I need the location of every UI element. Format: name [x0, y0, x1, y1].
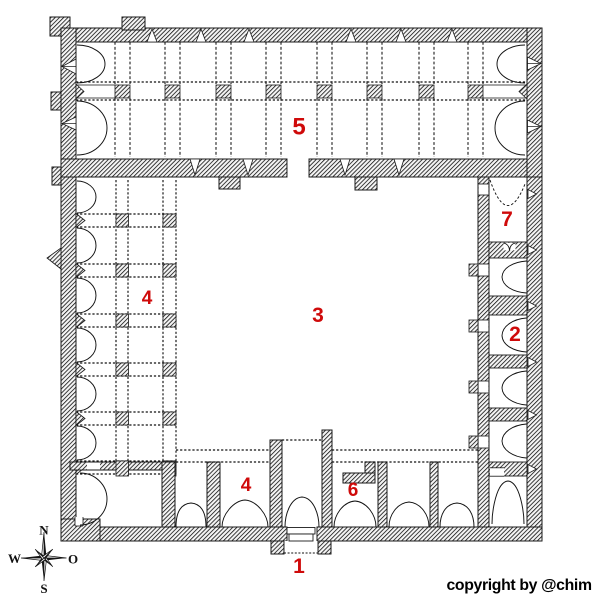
- svg-text:6: 6: [348, 480, 359, 501]
- svg-text:7: 7: [501, 208, 513, 231]
- svg-text:2: 2: [509, 323, 521, 346]
- svg-text:O: O: [68, 552, 78, 567]
- svg-text:N: N: [39, 523, 49, 538]
- svg-text:4: 4: [142, 288, 153, 309]
- svg-text:S: S: [40, 581, 47, 596]
- svg-text:copyright by @chim: copyright by @chim: [447, 577, 592, 594]
- svg-text:4: 4: [241, 475, 252, 496]
- svg-text:1: 1: [293, 555, 305, 578]
- svg-text:5: 5: [292, 114, 305, 141]
- svg-text:W: W: [8, 551, 21, 566]
- svg-text:3: 3: [312, 304, 324, 327]
